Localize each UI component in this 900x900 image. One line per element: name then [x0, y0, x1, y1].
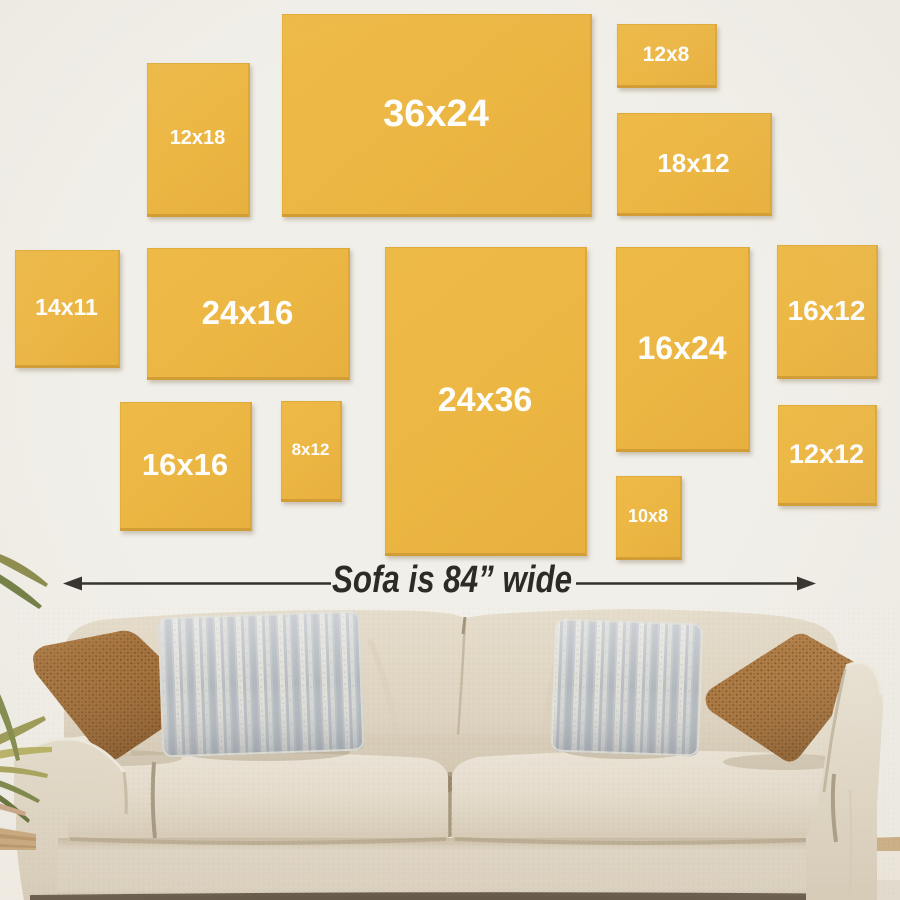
- svg-text:Sofa is 84” wide: Sofa is 84” wide: [332, 559, 572, 601]
